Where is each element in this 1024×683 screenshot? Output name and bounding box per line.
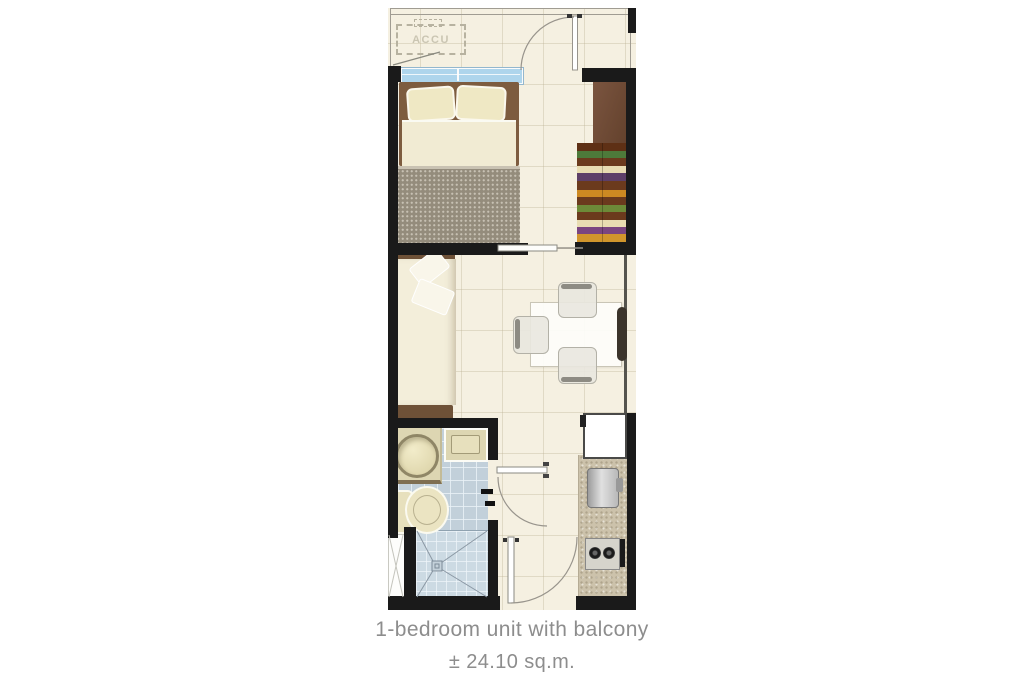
right-wall	[626, 70, 636, 245]
wardrobe-shelves	[577, 143, 628, 242]
bed-sheet	[402, 120, 516, 168]
round-basin	[395, 434, 439, 478]
kitchen-sink	[587, 468, 619, 508]
door-stop	[485, 501, 495, 506]
range-hood-bar	[620, 539, 625, 567]
shower-wall	[404, 527, 416, 603]
wardrobe-cabinet	[593, 80, 628, 143]
chair-back	[561, 377, 592, 382]
tv-console	[617, 307, 627, 361]
refrigerator	[583, 413, 627, 459]
bed-pillow	[406, 85, 456, 122]
faucet	[616, 478, 623, 492]
lavatory-basin	[451, 435, 480, 454]
dining-chair	[513, 316, 549, 354]
lavatory-sink	[444, 428, 488, 462]
toilet-seat	[413, 495, 441, 525]
balcony-rail-left	[390, 8, 391, 68]
page: ACCU	[0, 0, 1024, 683]
kitchen-right-wall	[627, 413, 636, 610]
bedroom-partition-wall	[388, 243, 528, 255]
bathroom-wall	[488, 520, 498, 605]
bathroom-wall	[388, 418, 498, 428]
window-divider	[457, 69, 459, 81]
left-wall	[388, 66, 398, 538]
dining-chair	[558, 347, 597, 384]
shower-area	[416, 530, 488, 599]
wall	[575, 242, 636, 255]
chair-back	[561, 284, 592, 289]
shelf-divider	[602, 143, 603, 242]
floor-plan: ACCU	[388, 8, 636, 610]
balcony-rail	[390, 8, 634, 15]
chair-back	[515, 319, 520, 349]
bottom-wall	[388, 596, 500, 610]
window-glazing-line	[402, 74, 520, 75]
accu-vent	[414, 19, 442, 27]
stove-burner	[589, 547, 601, 559]
bed-pillow	[455, 85, 507, 123]
accu-unit: ACCU	[396, 24, 466, 55]
stove-burner	[603, 547, 615, 559]
unit-area: ± 24.10 sq.m.	[0, 651, 1024, 674]
door-stop	[481, 489, 493, 494]
bed-blanket	[396, 166, 520, 246]
dining-chair	[558, 282, 597, 318]
stove	[585, 538, 620, 570]
unit-title: 1-bedroom unit with balcony	[0, 618, 1024, 642]
wall	[628, 8, 636, 33]
fridge-hinge	[580, 415, 586, 427]
accu-label: ACCU	[412, 34, 450, 46]
bathroom-wall	[488, 418, 498, 460]
